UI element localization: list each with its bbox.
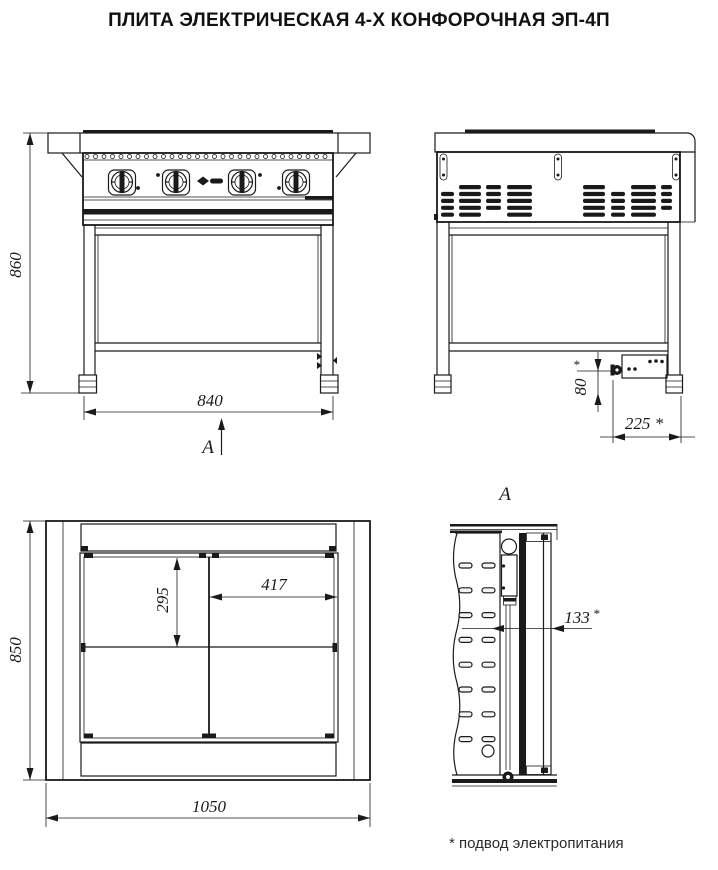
burner-knob-3	[229, 170, 256, 195]
indicator-dot	[136, 186, 140, 190]
plan-rear-strip	[81, 524, 336, 551]
panel-badge	[305, 196, 333, 200]
drawing-sheet: ПЛИТА ЭЛЕКТРИЧЕСКАЯ 4-Х КОНФОРОЧНАЯ ЭП-4…	[0, 0, 718, 870]
vent-holes-row	[85, 155, 327, 159]
plan-outline	[46, 521, 370, 780]
plan-front-strip	[81, 743, 336, 776]
section-louvered-panel	[453, 533, 500, 775]
dim-80-asterisk: *	[573, 357, 580, 372]
burner-knob-4	[283, 170, 310, 195]
indicator-dot	[258, 173, 262, 177]
door-handle-groove	[83, 209, 333, 215]
plan-view: 850 295 417 10	[6, 521, 370, 827]
dim-plan-depth: 850	[6, 521, 47, 780]
dim-417-label: 417	[261, 575, 288, 594]
dim-860-label: 860	[6, 252, 25, 278]
section-right-channel	[519, 533, 551, 775]
indicator-dot	[156, 173, 160, 177]
side-top-plate	[435, 133, 695, 152]
dim-front-width: 840	[84, 391, 333, 420]
view-a-arrow-label: А	[200, 437, 214, 458]
panel-hole	[482, 745, 494, 757]
section-view-a: А	[450, 484, 600, 786]
dim-burner-width: 417	[210, 575, 337, 601]
burner-knob-2	[163, 170, 190, 195]
dim-225-label: 225 *	[625, 414, 664, 433]
plan-burner-frame	[80, 553, 338, 742]
dim-1050-label: 1050	[192, 797, 227, 816]
brand-logo	[197, 177, 223, 186]
view-a-arrow: А	[200, 418, 225, 458]
dim-133-label: 133	[564, 608, 590, 627]
panel-screws	[440, 154, 680, 180]
burner-knob-1	[109, 170, 136, 195]
dim-133-asterisk: *	[593, 606, 600, 621]
indicator-dot	[277, 186, 281, 190]
dim-840-label: 840	[197, 391, 223, 410]
section-cable-connector	[502, 539, 518, 783]
dim-850-label: 850	[6, 637, 25, 663]
dim-cable-offset: 225 *	[600, 380, 695, 443]
section-a-label: А	[497, 484, 511, 505]
side-underframe	[435, 222, 683, 393]
dim-cable-height: 80 *	[571, 352, 612, 412]
technical-drawing: 860 840 А	[0, 0, 718, 870]
power-supply-footnote: * подвод электропитания	[449, 835, 624, 852]
dim-section-cable-offset: 133 *	[462, 606, 600, 632]
front-view: 860 840 А	[6, 130, 370, 458]
dim-80-label: 80	[571, 378, 590, 396]
dim-burner-depth: 295	[153, 558, 181, 647]
section-top-cap	[450, 524, 557, 540]
dim-295-label: 295	[153, 587, 172, 613]
power-connection-box	[611, 355, 668, 378]
dim-plan-width: 1050	[46, 783, 370, 827]
side-view: 80 * 225 *	[434, 130, 695, 444]
front-underframe	[79, 225, 338, 393]
ventilation-louvers	[441, 185, 672, 217]
